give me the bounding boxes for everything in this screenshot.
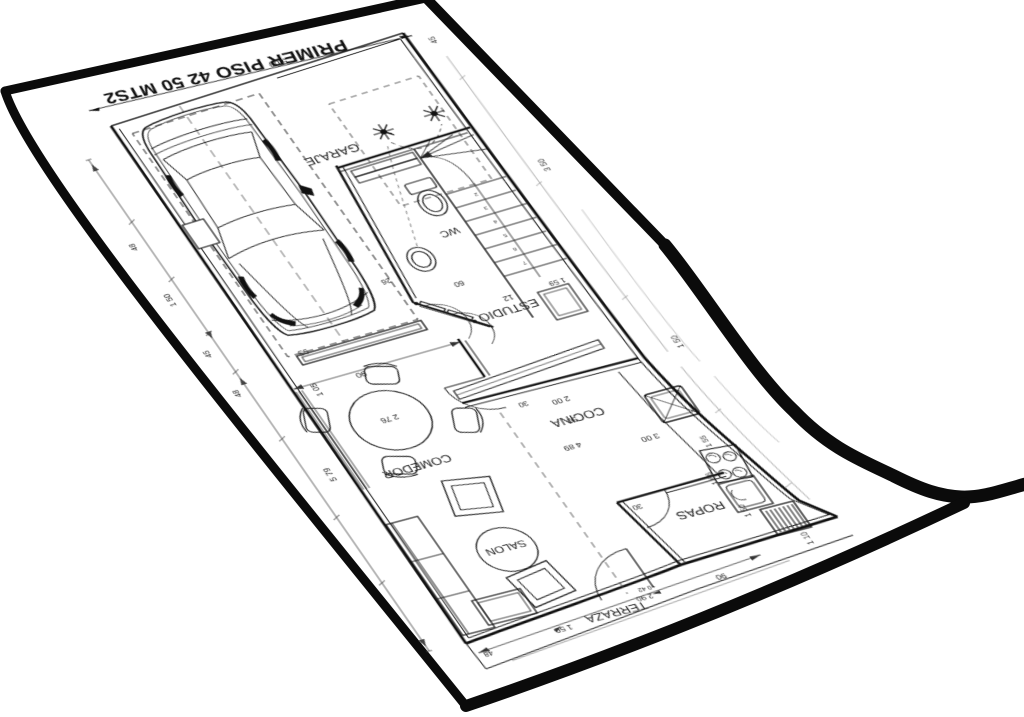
svg-text:5: 5 xyxy=(501,232,508,238)
svg-text:60: 60 xyxy=(451,279,466,289)
svg-text:90: 90 xyxy=(713,571,729,581)
svg-text:2 00: 2 00 xyxy=(549,394,572,406)
svg-text:6: 6 xyxy=(511,246,518,252)
svg-text:48: 48 xyxy=(126,242,140,252)
svg-text:1 55: 1 55 xyxy=(699,434,715,448)
svg-text:+0 42: +0 42 xyxy=(635,583,656,593)
svg-text:45: 45 xyxy=(200,349,214,359)
svg-text:95: 95 xyxy=(295,347,311,358)
svg-text:1 50: 1 50 xyxy=(668,334,687,349)
svg-text:90: 90 xyxy=(353,369,369,380)
svg-text:COCINA: COCINA xyxy=(548,404,608,430)
svg-text:45: 45 xyxy=(426,35,441,45)
svg-text:12: 12 xyxy=(501,293,516,303)
svg-text:30: 30 xyxy=(516,399,530,409)
svg-text:1 50: 1 50 xyxy=(552,623,575,635)
svg-text:1 59: 1 59 xyxy=(547,276,568,288)
svg-text:26: 26 xyxy=(378,276,393,286)
svg-text:1 10: 1 10 xyxy=(798,531,817,546)
svg-text:1 50: 1 50 xyxy=(161,292,179,307)
svg-text:2: 2 xyxy=(472,191,479,197)
svg-text:3 50: 3 50 xyxy=(535,158,553,173)
svg-text:1 05: 1 05 xyxy=(307,382,325,398)
svg-text:48: 48 xyxy=(230,388,245,398)
svg-text:4 89: 4 89 xyxy=(561,440,583,452)
svg-text:3: 3 xyxy=(482,205,489,211)
svg-text:5 79: 5 79 xyxy=(320,466,340,482)
svg-text:WC: WC xyxy=(437,224,462,238)
svg-text:ROPAS: ROPAS xyxy=(673,498,728,522)
svg-text:2 76: 2 76 xyxy=(378,412,401,425)
svg-text:7: 7 xyxy=(521,259,528,265)
svg-text:3 00: 3 00 xyxy=(638,431,661,443)
svg-text:PRIMER PISO 42 50 MTS2: PRIMER PISO 42 50 MTS2 xyxy=(101,36,351,107)
svg-text:4: 4 xyxy=(492,218,499,224)
svg-text:SALON: SALON xyxy=(483,537,529,557)
